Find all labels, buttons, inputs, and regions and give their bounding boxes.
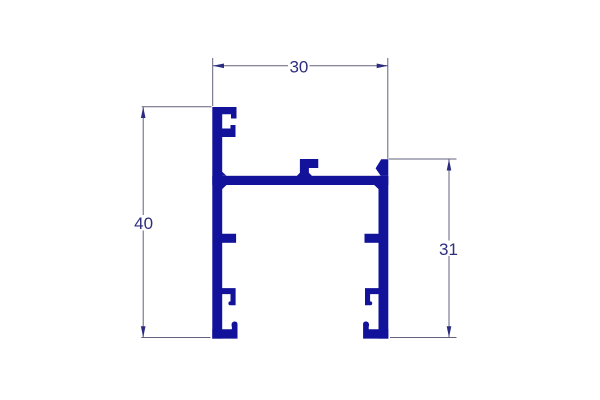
svg-text:30: 30 <box>289 57 308 76</box>
svg-text:31: 31 <box>439 240 458 259</box>
svg-text:40: 40 <box>134 214 153 233</box>
